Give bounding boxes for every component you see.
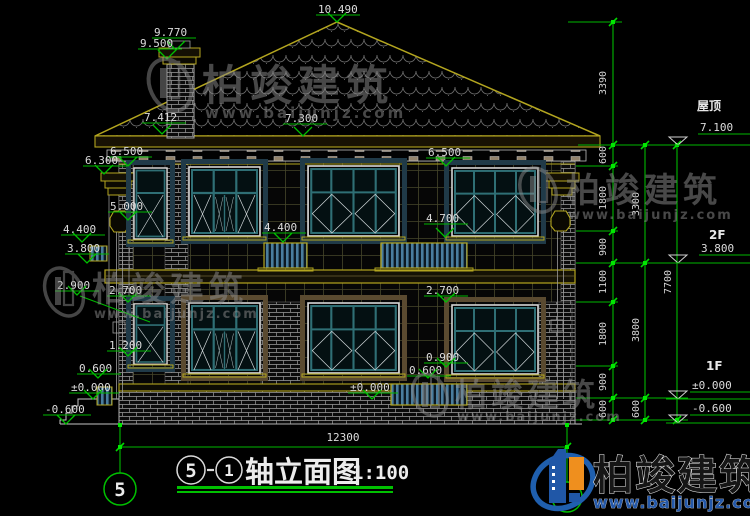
svg-text:6.500: 6.500 xyxy=(428,146,461,159)
window-1f-middle xyxy=(302,298,405,379)
svg-text:7.412: 7.412 xyxy=(144,111,177,124)
watermark-left: 柏竣建筑 www.baijunjz.com xyxy=(37,262,259,323)
watermark-bottom: 柏竣建筑 www.baijunjz.com xyxy=(406,368,622,425)
svg-text:5: 5 xyxy=(114,479,125,501)
window-1f-right xyxy=(446,300,544,380)
svg-text:4.400: 4.400 xyxy=(63,223,96,236)
svg-text:6.300: 6.300 xyxy=(85,154,118,167)
elevation-drawing: 10.490 9.770 9.500 7.412 7.300 6.500 6.3… xyxy=(0,0,750,516)
window-2f-right xyxy=(446,163,544,242)
svg-text:www.baijunjz.com: www.baijunjz.com xyxy=(205,104,406,122)
svg-text:1.200: 1.200 xyxy=(109,339,142,352)
svg-text:5.000: 5.000 xyxy=(110,200,143,213)
svg-text:±0.000: ±0.000 xyxy=(350,381,390,394)
window-2f-left xyxy=(183,162,266,242)
svg-text:1F: 1F xyxy=(706,359,723,373)
svg-text:3800: 3800 xyxy=(631,318,642,342)
level-roof-right: 屋顶 7.100 xyxy=(666,99,750,145)
drawing-title-block: 5 1 轴立面图 1:100 xyxy=(177,455,409,493)
svg-text:1800: 1800 xyxy=(598,322,609,346)
svg-text:www.baijunjz.com: www.baijunjz.com xyxy=(94,307,259,322)
svg-text:www.baijunjz.com: www.baijunjz.com xyxy=(568,208,733,223)
level-4400-left: 4.400 xyxy=(61,223,105,242)
svg-text:1100: 1100 xyxy=(598,270,609,294)
svg-text:7700: 7700 xyxy=(663,270,674,294)
title-axis-end: 1 xyxy=(224,461,234,480)
level-peak: 10.490 xyxy=(316,3,360,22)
svg-text:0.900: 0.900 xyxy=(426,351,459,364)
window-2f-middle xyxy=(302,161,405,242)
svg-text:4.700: 4.700 xyxy=(426,212,459,225)
svg-text:600: 600 xyxy=(631,400,642,418)
logo-url-text: www.baijunjz.com xyxy=(593,493,750,512)
svg-text:3390: 3390 xyxy=(598,71,609,95)
svg-text:900: 900 xyxy=(598,373,609,391)
svg-text:3.800: 3.800 xyxy=(67,242,100,255)
svg-text:柏竣建筑: 柏竣建筑 xyxy=(455,376,599,414)
svg-text:900: 900 xyxy=(598,238,609,256)
drawing-scale: 1:100 xyxy=(352,462,409,484)
svg-text:4.400: 4.400 xyxy=(264,221,297,234)
svg-text:柏竣建筑: 柏竣建筑 xyxy=(566,171,722,211)
svg-text:-0.600: -0.600 xyxy=(45,403,85,416)
svg-text:±0.000: ±0.000 xyxy=(71,381,111,394)
svg-text:屋顶: 屋顶 xyxy=(697,99,721,113)
svg-text:600: 600 xyxy=(598,146,609,164)
svg-text:2F: 2F xyxy=(709,228,726,242)
title-axis-start: 5 xyxy=(185,460,196,482)
svg-text:-0.600: -0.600 xyxy=(692,402,732,415)
louver-vent-2f-right xyxy=(375,243,473,271)
svg-text:10.490: 10.490 xyxy=(318,3,358,16)
axis-bubble-left: 5 xyxy=(104,473,136,505)
svg-text:±0.000: ±0.000 xyxy=(692,379,732,392)
louver-vent-2f-left xyxy=(258,243,313,271)
svg-text:2.700: 2.700 xyxy=(426,284,459,297)
logo-building-orange xyxy=(569,457,584,490)
svg-text:www.baijunjz.com: www.baijunjz.com xyxy=(457,410,622,425)
company-logo: 柏竣建筑 www.baijunjz.com xyxy=(524,445,750,516)
svg-text:3.800: 3.800 xyxy=(701,242,734,255)
level-m0600-left: -0.600 xyxy=(43,403,91,424)
svg-text:7.100: 7.100 xyxy=(700,121,733,134)
level-0600-left: 0.600 xyxy=(77,362,121,378)
drawing-title: 轴立面图 xyxy=(245,455,361,489)
svg-text:柏竣建筑: 柏竣建筑 xyxy=(202,61,394,110)
svg-text:柏竣建筑: 柏竣建筑 xyxy=(92,270,248,310)
level-2f-right: 2F 3.800 xyxy=(666,228,750,263)
level-1f-right: 1F ±0.000 xyxy=(666,359,750,399)
svg-text:9.500: 9.500 xyxy=(140,37,173,50)
cad-canvas: 10.490 9.770 9.500 7.412 7.300 6.500 6.3… xyxy=(0,0,750,516)
svg-text:12300: 12300 xyxy=(326,431,359,444)
svg-text:0.600: 0.600 xyxy=(79,362,112,375)
